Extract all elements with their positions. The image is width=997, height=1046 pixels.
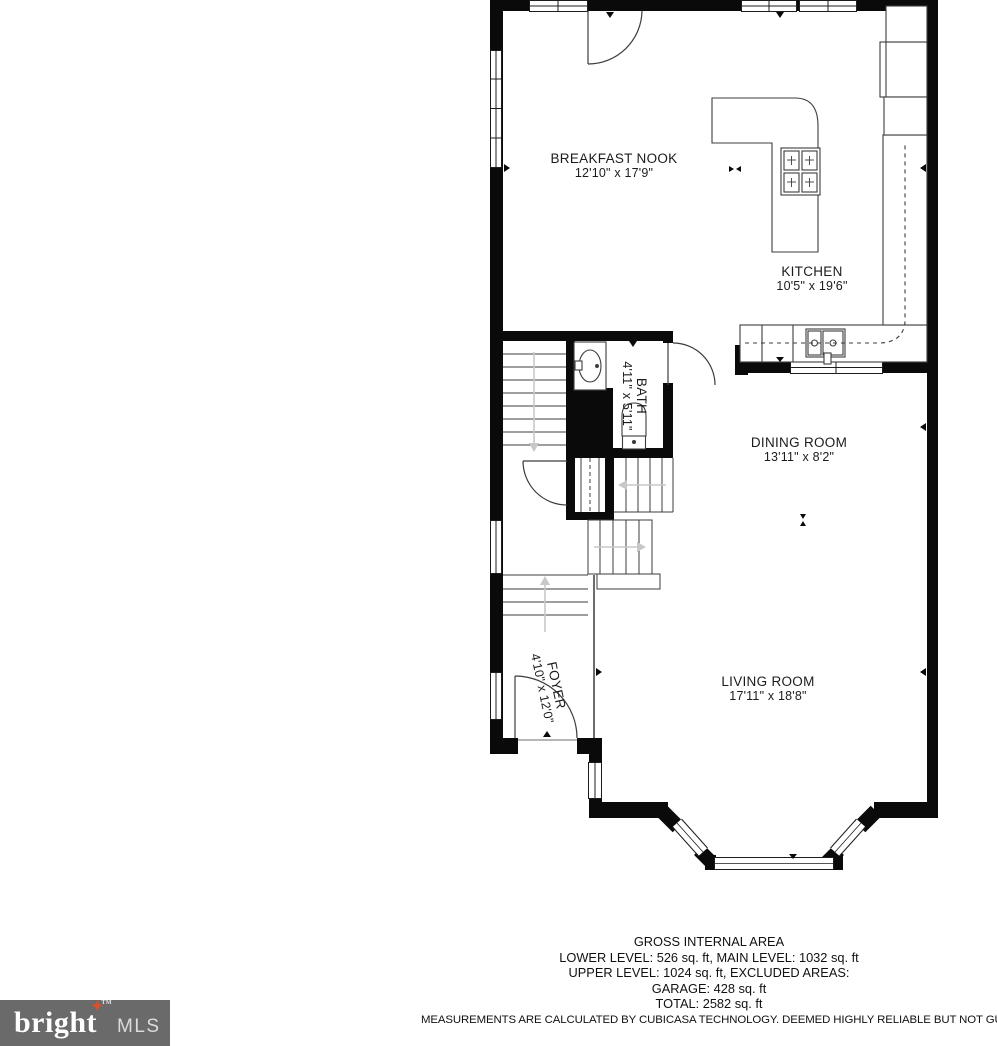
svg-text:4'11" x 5'11": 4'11" x 5'11" — [620, 361, 634, 430]
refrigerator — [880, 42, 927, 97]
door-breakfast-nook — [588, 11, 642, 64]
stove — [781, 148, 820, 195]
summary-line-2: UPPER LEVEL: 1024 sq. ft, EXCLUDED AREAS… — [421, 965, 997, 981]
door-hall — [523, 461, 567, 505]
marker-top-door — [606, 12, 614, 18]
window-left-nook-lower — [491, 109, 502, 168]
summary-line-1: LOWER LEVEL: 526 sq. ft, MAIN LEVEL: 103… — [421, 950, 997, 966]
summary-line-4: TOTAL: 2582 sq. ft — [421, 996, 997, 1012]
label-foyer: FOYER 4'10" x 12'0" — [528, 649, 571, 725]
stairs-landing — [597, 574, 660, 589]
marker-left-wall — [504, 164, 510, 172]
dims-breakfast-nook: 12'10" x 17'9" — [575, 166, 653, 180]
label-breakfast-nook: BREAKFAST NOOK — [551, 151, 678, 166]
bay-window-left-diagonal — [673, 819, 708, 856]
label-living-room: LIVING ROOM — [721, 674, 814, 689]
window-left-foyer — [491, 673, 502, 720]
floor-plan-page: BREAKFAST NOOK 12'10" x 17'9" KITCHEN 10… — [0, 0, 997, 1046]
marker-foyer-door — [543, 731, 551, 737]
arrow-left-upper-run — [618, 480, 666, 490]
floor-plan-drawing: BREAKFAST NOOK 12'10" x 17'9" KITCHEN 10… — [0, 0, 997, 1046]
wall-bath-right-lower — [663, 383, 673, 448]
label-kitchen: KITCHEN — [781, 264, 842, 279]
door-bath — [668, 343, 715, 385]
wall-bath-top — [503, 331, 673, 341]
wall-living-bottom-left — [589, 802, 668, 818]
kitchen-fixtures — [712, 6, 927, 364]
summary-title: GROSS INTERNAL AREA — [421, 934, 997, 950]
marker-right-wall-living — [920, 668, 926, 676]
window-left-stair — [491, 521, 502, 574]
marker-right-wall-dining — [920, 423, 926, 431]
dims-living-room: 17'11" x 18'8" — [729, 689, 806, 703]
window-living-left — [589, 763, 602, 799]
marker-bath-wall — [629, 341, 637, 347]
marker-bowtie-dining — [800, 514, 806, 526]
summary-disclaimer: MEASUREMENTS ARE CALCULATED BY CUBICASA … — [421, 1013, 997, 1029]
wall-bath-right-upper — [663, 331, 673, 343]
marker-top-window — [776, 12, 784, 18]
cabinet-top-right — [886, 6, 927, 42]
wall-living-bottom-right — [874, 802, 938, 818]
window-left-nook-upper — [491, 51, 502, 109]
bath-sink-vanity — [574, 342, 606, 390]
svg-text:BATH: BATH — [634, 378, 649, 414]
bay-window-bottom — [715, 858, 834, 870]
wall-right — [927, 0, 938, 818]
dims-dining-room: 13'11" x 8'2" — [764, 450, 834, 464]
cabinet-below-fridge — [884, 97, 927, 135]
bright-mls-logo: bright ✦ TM MLS — [0, 1000, 170, 1046]
marker-left-wall-living — [596, 668, 602, 676]
window-top-left — [530, 1, 588, 12]
window-dining — [791, 362, 883, 374]
dims-kitchen: 10'5" x 19'6" — [776, 279, 847, 293]
area-summary: GROSS INTERNAL AREA LOWER LEVEL: 526 sq.… — [421, 934, 997, 1029]
logo-brand-text: bright ✦ TM — [14, 1008, 97, 1038]
upper-cabinet-dashed — [745, 142, 905, 343]
arrow-right-lower-run — [594, 542, 646, 552]
logo-trademark: TM — [101, 1000, 112, 1006]
marker-bowtie-kitchen — [729, 166, 741, 172]
window-top-mid — [742, 1, 797, 12]
bay-window-right-diagonal — [831, 819, 866, 856]
summary-line-3: GARAGE: 428 sq. ft — [421, 981, 997, 997]
wall-foyer-bottom-left — [490, 738, 518, 754]
logo-suffix-text: MLS — [117, 1016, 161, 1038]
window-top-right — [800, 1, 857, 12]
wall-bath-block — [566, 388, 613, 450]
arrow-up-foyer-flight — [540, 576, 550, 632]
label-dining-room: DINING ROOM — [751, 435, 847, 450]
